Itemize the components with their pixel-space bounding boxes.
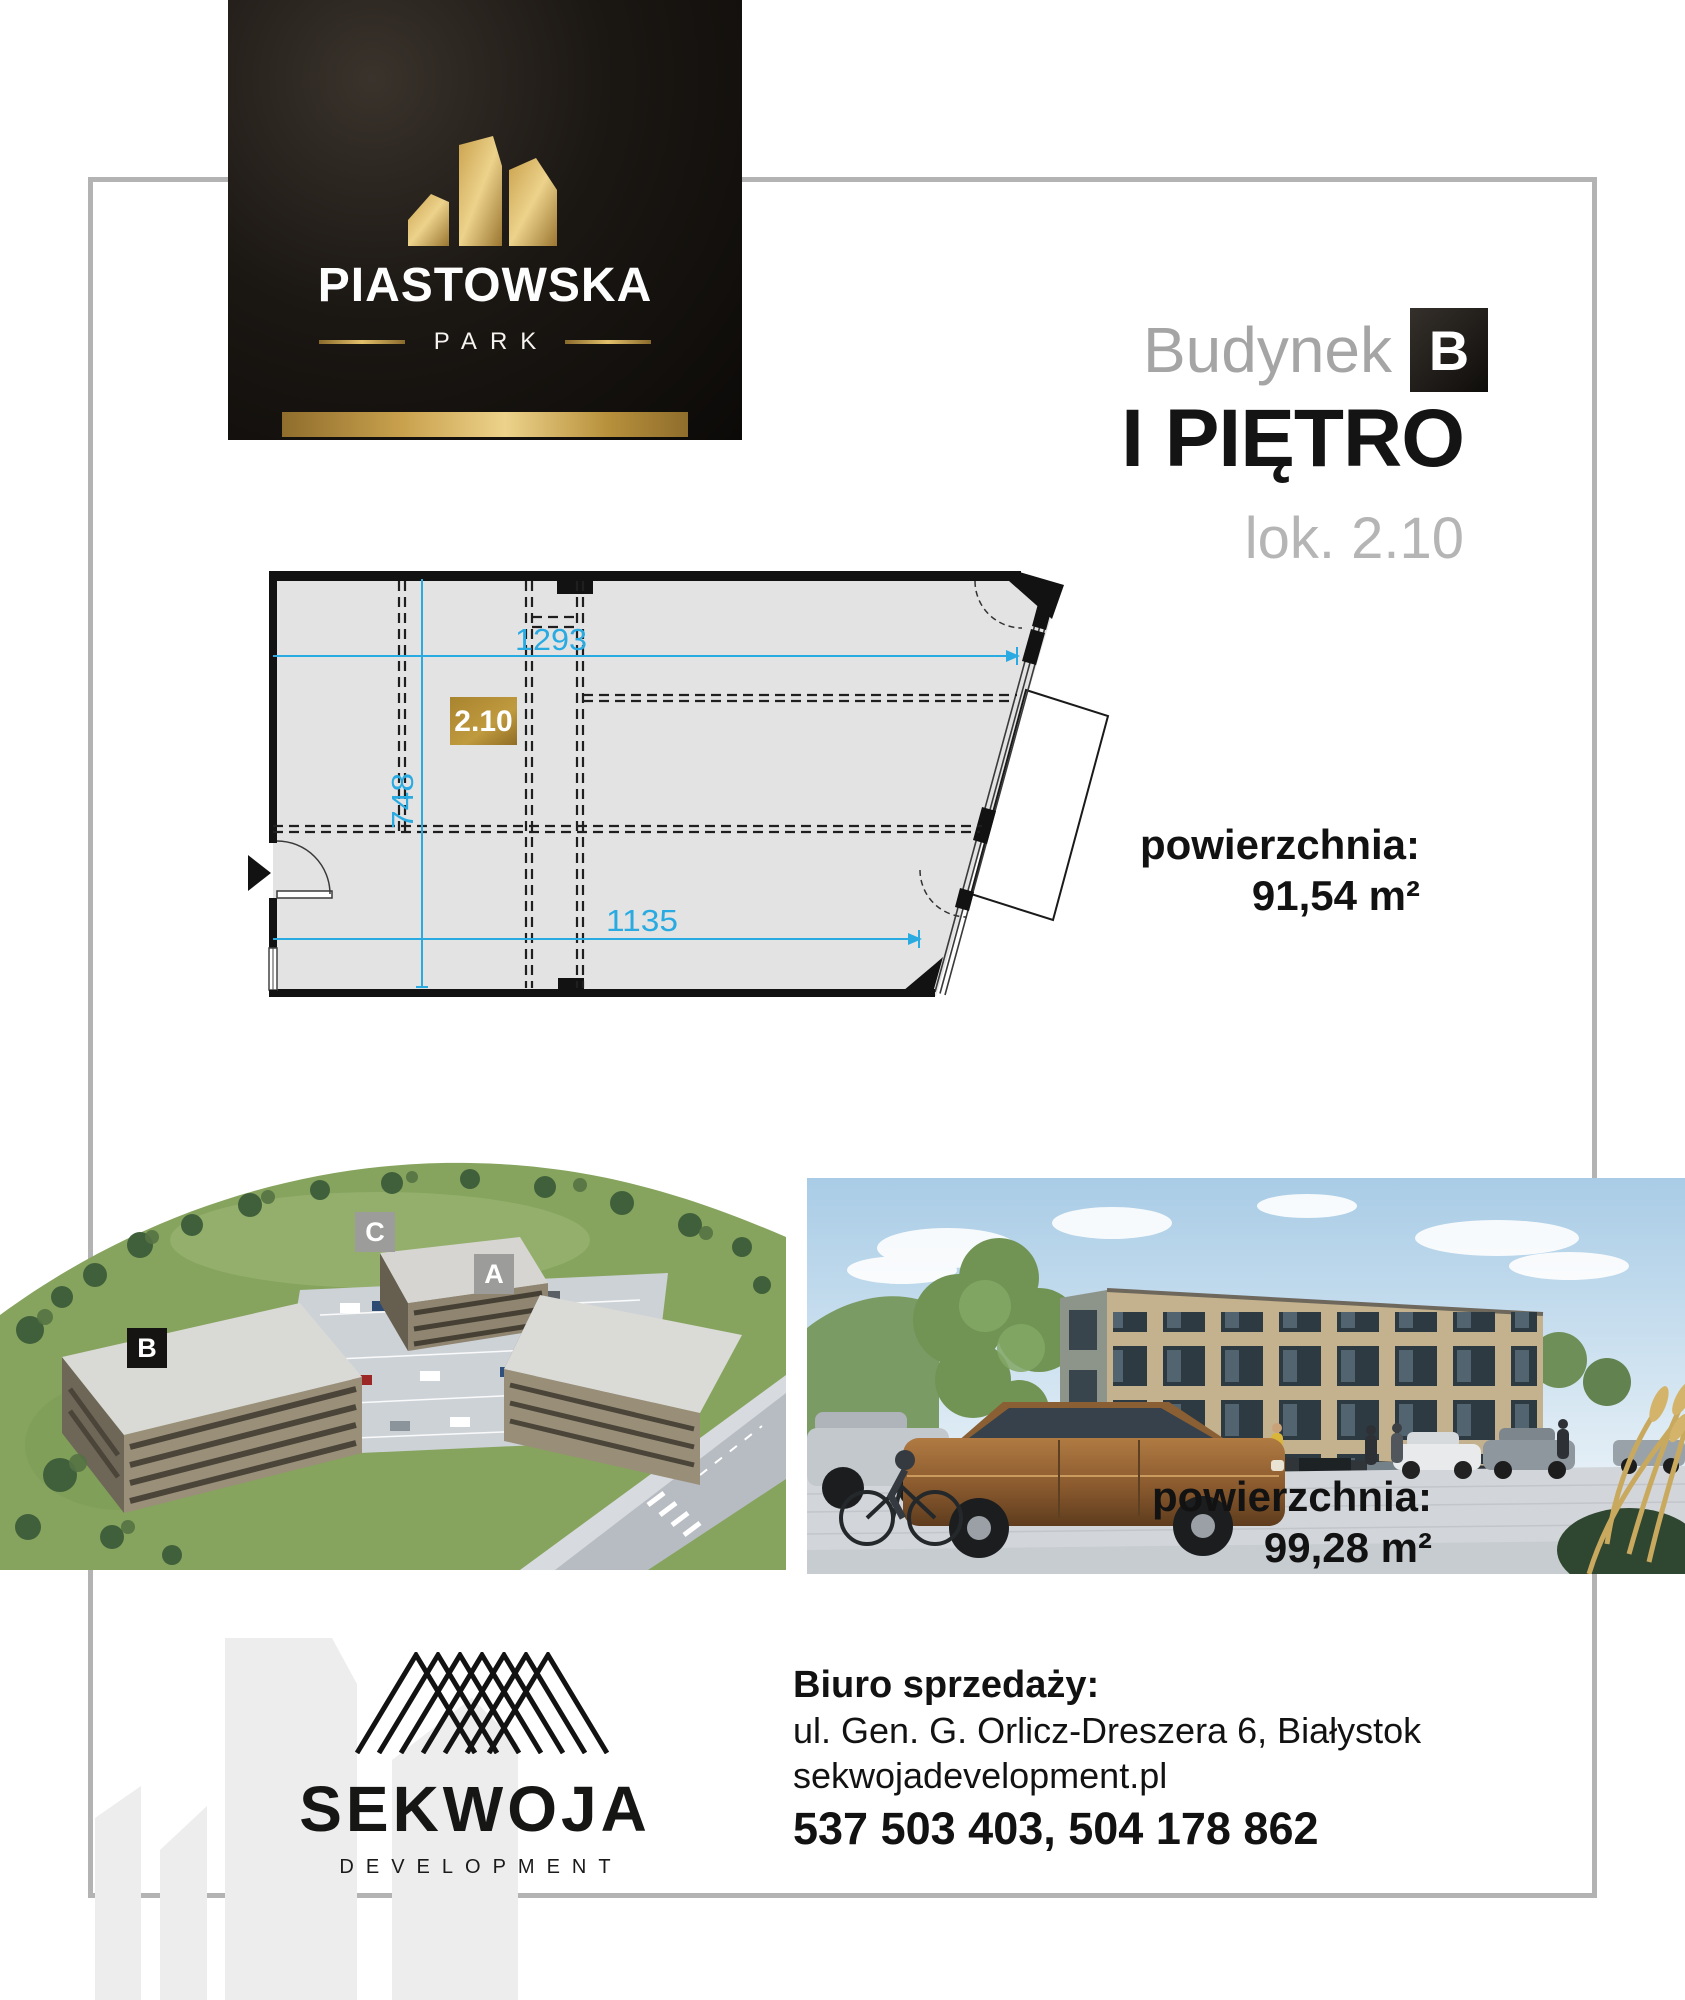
column (558, 978, 584, 991)
entrance-door-leaf (277, 891, 332, 898)
column (557, 579, 593, 594)
entrance-arrow-icon (248, 855, 271, 891)
contact-office-label: Biuro sprzedaży: (793, 1662, 1421, 1708)
area-secondary-value: 99,28 m² (1152, 1522, 1432, 1574)
dim-left-label: 748 (385, 773, 420, 829)
gold-bar (282, 412, 688, 437)
dim-top-label: 1293 (515, 622, 587, 657)
area-primary: powierzchnia: 91,54 m² (1140, 820, 1420, 922)
gold-divider-right (565, 340, 651, 344)
site-label-a: A (474, 1254, 514, 1294)
floor-title: I PIĘTRO (1121, 392, 1464, 486)
site-label-b: B (127, 1328, 167, 1368)
floor-plan: 1293 748 1135 2.10 (230, 555, 1130, 1025)
brand-tagline: PARK (421, 328, 550, 356)
contact-website: sekwojadevelopment.pl (793, 1753, 1421, 1798)
area-secondary: powierzchnia: 99,28 m² (1152, 1472, 1432, 1574)
site-aerial-render (0, 1145, 786, 1570)
unit-badge-label: 2.10 (454, 705, 512, 738)
building-label: Budynek (1143, 313, 1392, 387)
unit-subtitle: lok. 2.10 (1245, 505, 1464, 572)
site-label-c: C (355, 1212, 395, 1252)
contact-block: Biuro sprzedaży: ul. Gen. G. Orlicz-Dres… (793, 1662, 1421, 1858)
contact-address: ul. Gen. G. Orlicz-Dreszera 6, Białystok (793, 1708, 1421, 1753)
brand-name: PIASTOWSKA (228, 258, 742, 313)
area-secondary-label: powierzchnia: (1152, 1472, 1432, 1522)
gold-towers-icon (405, 130, 561, 248)
dim-bottom-label: 1135 (606, 903, 678, 938)
gold-divider-left (319, 340, 405, 344)
flyer-page: PIASTOWSKA PARK Budynek B I PIĘTRO lok. … (0, 0, 1685, 2000)
contact-phones: 537 503 403, 504 178 862 (793, 1800, 1421, 1858)
area-primary-value: 91,54 m² (1140, 870, 1420, 922)
building-heading: Budynek B (1143, 308, 1488, 392)
area-primary-label: powierzchnia: (1140, 820, 1420, 870)
sekwoja-lattice-icon (355, 1652, 615, 1754)
brand-tagline-row: PARK (228, 328, 742, 356)
developer-descriptor: DEVELOPMENT (275, 1856, 675, 1879)
developer-name: SEKWOJA (275, 1772, 675, 1846)
brand-logo-box: PIASTOWSKA PARK (228, 0, 742, 440)
building-letter-badge: B (1410, 308, 1488, 392)
